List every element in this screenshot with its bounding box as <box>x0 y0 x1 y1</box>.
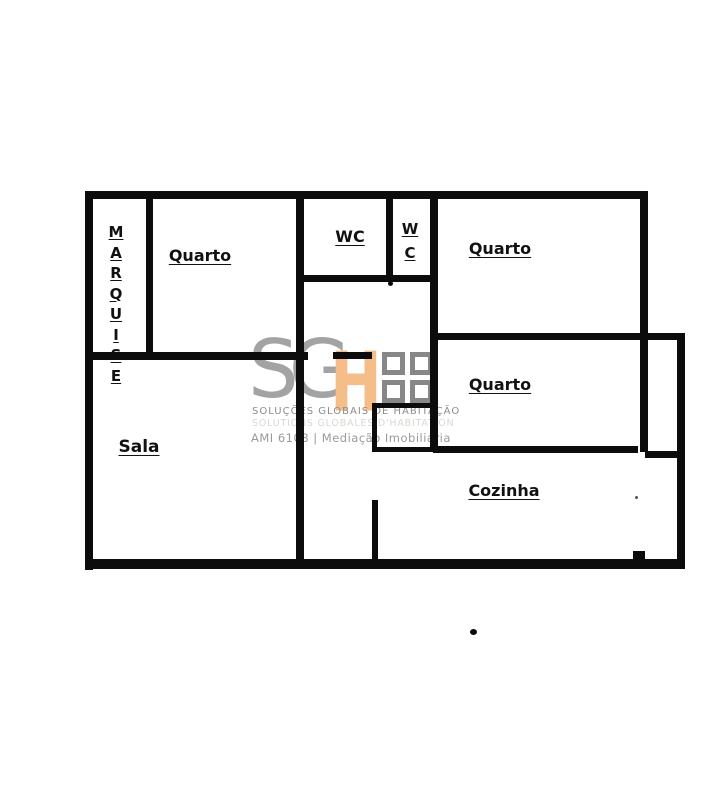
wall-quarto2-bottom <box>433 446 638 453</box>
logo-letter-s: S <box>248 323 289 416</box>
wc-small-letter: W <box>402 217 419 241</box>
wall-wc-bottom <box>296 275 437 282</box>
wall-strip-bottom <box>645 451 683 458</box>
marquise-letter: Q <box>110 284 123 305</box>
wall-outer-bottom <box>85 559 683 569</box>
room-label-quarto-middle-right: Quarto <box>458 376 542 394</box>
door-hinge-dot <box>388 281 393 286</box>
window-grid-cell <box>382 380 405 403</box>
wc-small-letter: C <box>404 241 415 265</box>
wall-door-mark <box>633 551 645 559</box>
room-label-marquise: M A R Q U I S E <box>101 222 131 386</box>
sgh-logo-sg: SG <box>248 330 341 410</box>
marquise-letter: R <box>110 263 122 284</box>
wall-outer-top <box>85 191 648 199</box>
room-label-sala: Sala <box>108 438 170 458</box>
small-dot <box>635 496 638 499</box>
closet-outline <box>372 403 438 452</box>
wall-sala-top <box>85 352 308 360</box>
window-grid-icon <box>382 352 433 403</box>
wall-corridor-left <box>296 191 304 569</box>
marquise-letter: E <box>111 366 121 387</box>
wall-corridor-segment <box>333 352 372 359</box>
marquise-letter: U <box>110 304 122 325</box>
wall-marquise-right <box>146 191 153 360</box>
page-dot <box>470 629 477 635</box>
room-label-wc-small: W C <box>392 217 428 265</box>
room-label-quarto-top-left: Quarto <box>158 247 242 265</box>
room-label-cozinha: Cozinha <box>458 482 550 500</box>
room-label-wc-main: WC <box>322 228 378 246</box>
room-label-quarto-top-right: Quarto <box>458 240 542 258</box>
wall-outer-left <box>85 191 93 570</box>
wall-kitchen-stub <box>372 500 378 560</box>
wall-right-main <box>640 191 648 452</box>
marquise-letter: A <box>110 243 122 264</box>
window-grid-cell <box>382 352 405 375</box>
wall-quarto2-top <box>437 333 648 340</box>
marquise-letter: I <box>113 325 119 346</box>
floorplan-page: SG H SOLUÇÕES GLOBAIS DE HABITAÇÃO SOLUT… <box>0 0 713 811</box>
marquise-letter: M <box>109 222 124 243</box>
